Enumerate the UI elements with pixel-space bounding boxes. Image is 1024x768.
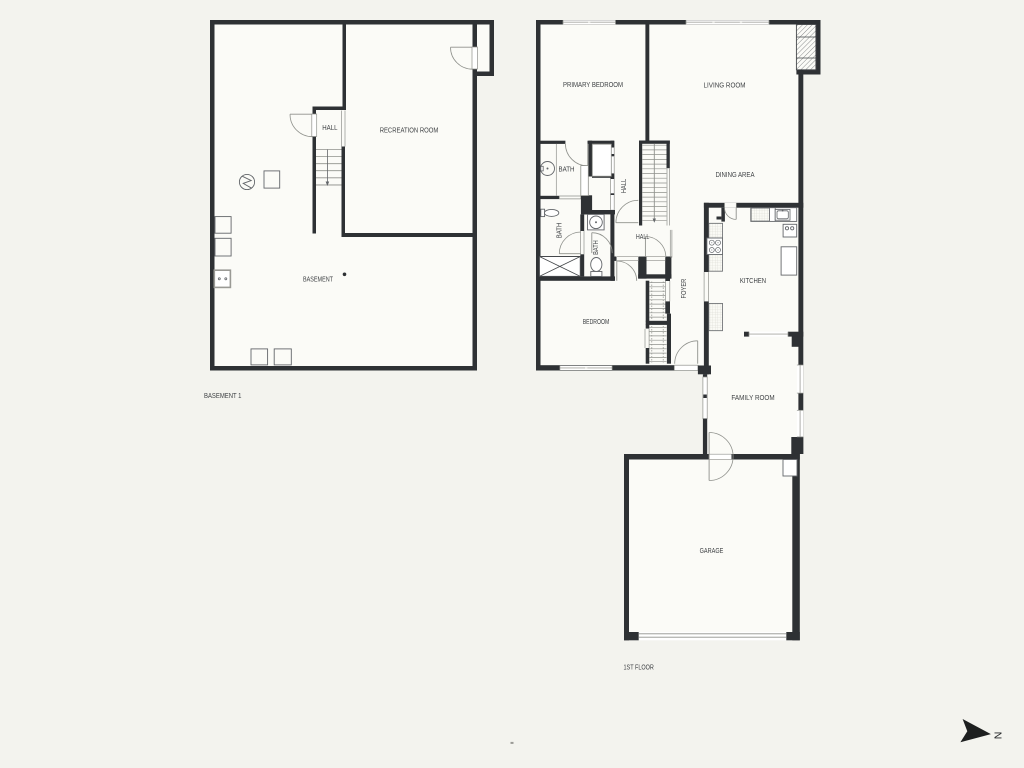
svg-text:GARAGE: GARAGE <box>700 546 724 555</box>
svg-text:N: N <box>992 732 1004 740</box>
svg-text:DINING AREA: DINING AREA <box>716 170 755 179</box>
svg-text:LIVING ROOM: LIVING ROOM <box>704 80 746 89</box>
svg-text:FAMILY ROOM: FAMILY ROOM <box>731 393 774 402</box>
svg-text:BATH: BATH <box>559 165 575 174</box>
svg-text:BATH: BATH <box>554 223 563 239</box>
svg-text:1ST FLOOR: 1ST FLOOR <box>624 663 655 672</box>
svg-text:HALL: HALL <box>636 232 650 241</box>
svg-text:BATH: BATH <box>591 240 600 255</box>
svg-text:FOYER: FOYER <box>679 279 688 299</box>
svg-text:HALL: HALL <box>619 179 628 194</box>
svg-text:BASEMENT 1: BASEMENT 1 <box>204 391 242 400</box>
svg-text:BASEMENT: BASEMENT <box>303 274 333 283</box>
svg-text:KITCHEN: KITCHEN <box>740 276 766 285</box>
svg-text:PRIMARY BEDROOM: PRIMARY BEDROOM <box>563 80 623 89</box>
svg-text:RECREATION ROOM: RECREATION ROOM <box>380 126 439 135</box>
svg-text:HALL: HALL <box>322 123 337 132</box>
svg-text:BEDROOM: BEDROOM <box>583 317 610 326</box>
